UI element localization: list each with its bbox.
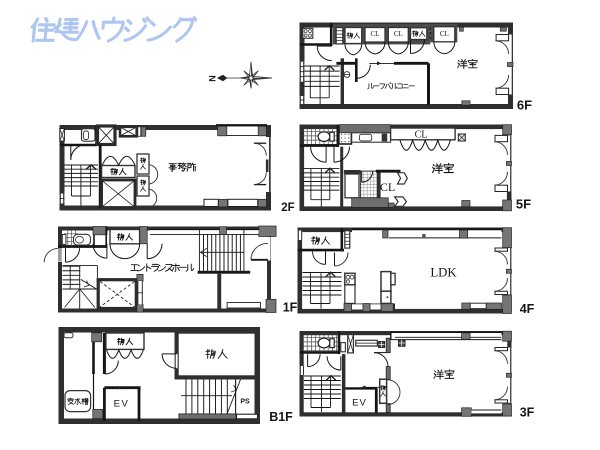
svg-text:2F: 2F <box>281 202 294 214</box>
svg-text:3F: 3F <box>520 406 535 420</box>
svg-text:CL: CL <box>415 130 428 141</box>
svg-text:CL: CL <box>440 30 449 38</box>
svg-text:1F: 1F <box>283 301 298 315</box>
svg-text:EV: EV <box>352 398 367 409</box>
svg-text:PS: PS <box>240 399 250 406</box>
svg-text:N: N <box>208 75 218 82</box>
svg-text:5F: 5F <box>516 197 531 212</box>
svg-text:B1F: B1F <box>269 410 293 424</box>
svg-text:6F: 6F <box>517 98 532 113</box>
svg-text:LDK: LDK <box>430 266 457 280</box>
svg-text:CL: CL <box>371 30 380 38</box>
svg-text:EV: EV <box>114 399 130 410</box>
svg-text:CL: CL <box>380 180 395 194</box>
svg-text:CL: CL <box>394 30 403 38</box>
svg-text:4F: 4F <box>520 302 535 316</box>
